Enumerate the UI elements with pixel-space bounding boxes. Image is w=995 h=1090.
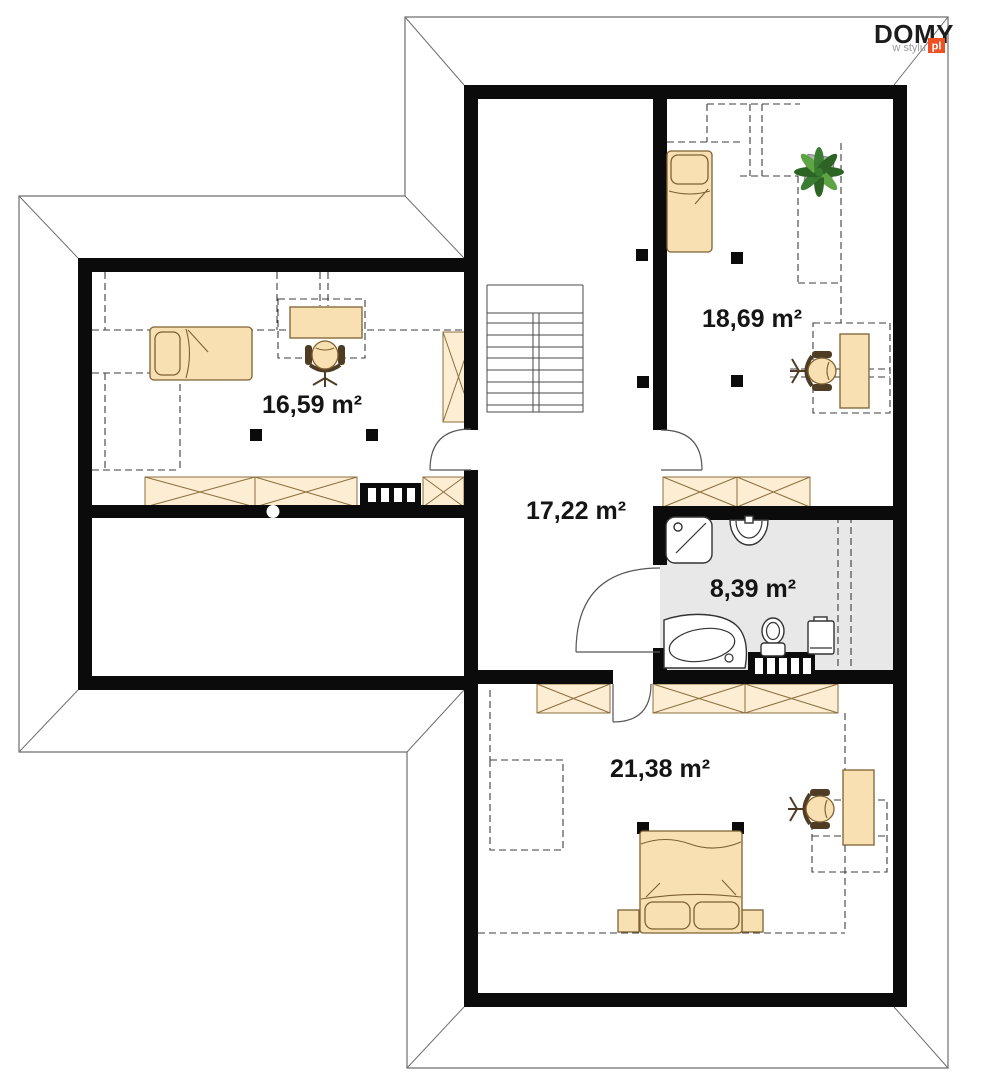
room-area-label: 8,39 m² [710,575,796,603]
room-area-label: 21,38 m² [610,755,710,783]
wardrobe [663,477,737,507]
washing-machine [808,617,834,654]
logo: DOMY w stylu pl [874,19,954,54]
radiator [748,652,815,684]
radiator [360,483,421,507]
wardrobe [745,684,838,713]
logo-tagline-text: w stylu [891,42,926,54]
wardrobe [737,477,810,507]
bed-double [618,831,763,933]
wardrobe [537,684,610,713]
bed-single [150,327,252,380]
wardrobe [423,477,464,507]
wall-column-circle [267,505,280,518]
logo-tld-text: pl [932,41,942,53]
room-area-label: 18,69 m² [702,305,802,333]
desk [290,307,362,338]
wardrobe [255,477,357,507]
floor-plan-svg: 16,59 m² 18,69 m² 17,22 m² 8,39 m² 21,38… [0,0,995,1085]
room-area-label: 17,22 m² [526,497,626,525]
wardrobe [653,684,745,713]
wardrobe [145,477,255,507]
potted-plant [794,147,844,197]
room-area-label: 16,59 m² [262,391,362,419]
floor-plan-page: 16,59 m² 18,69 m² 17,22 m² 8,39 m² 21,38… [0,0,995,1085]
toilet [761,618,785,656]
desk [840,334,869,408]
desk [843,770,874,845]
shower [666,517,712,563]
bed-single [667,151,712,252]
